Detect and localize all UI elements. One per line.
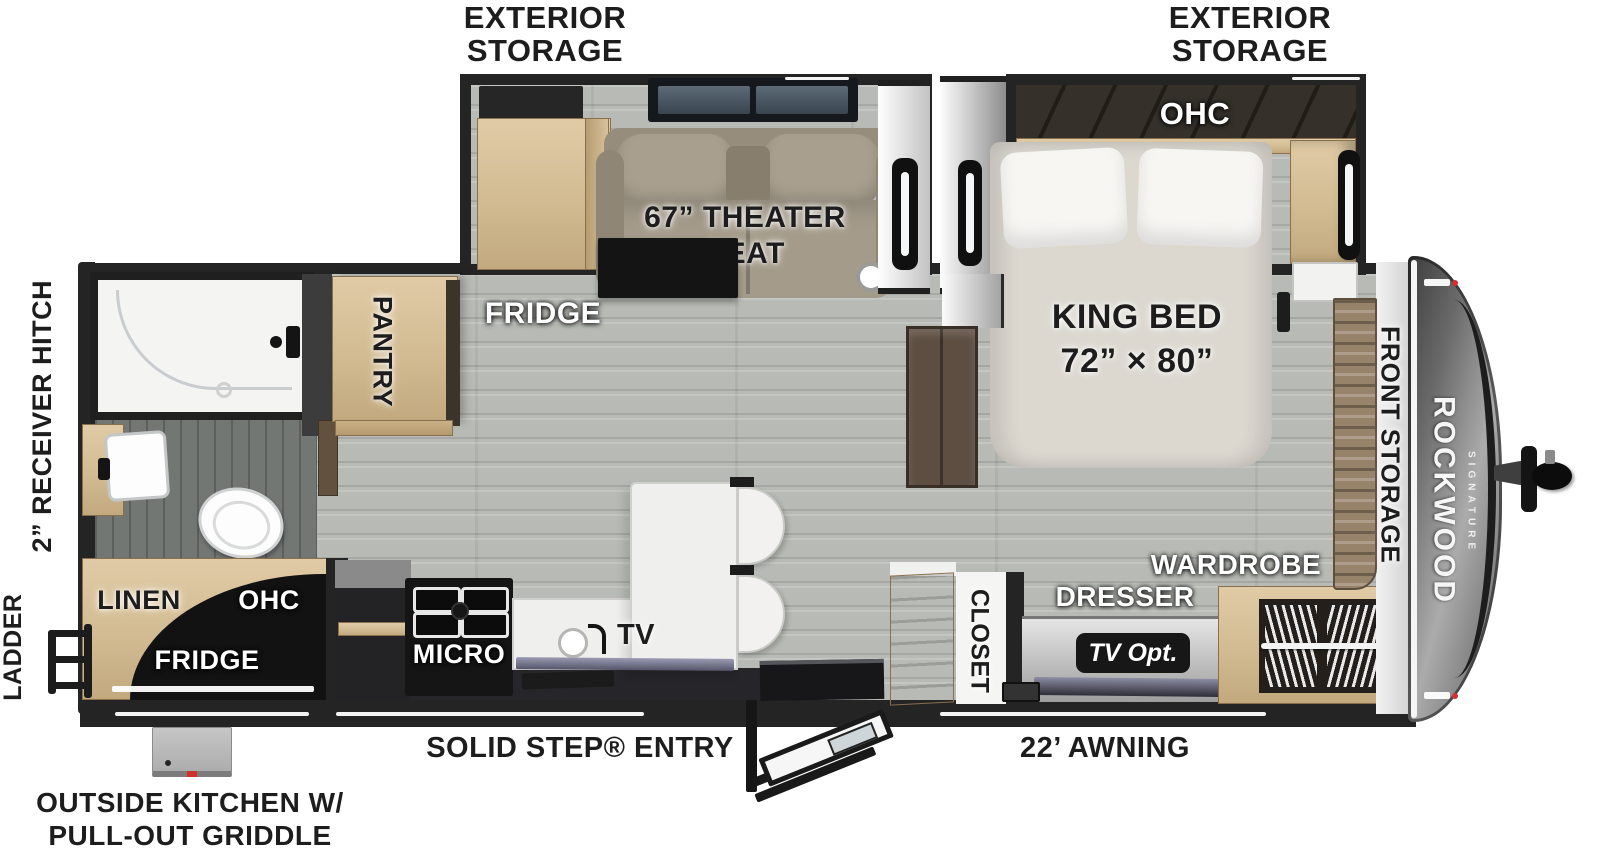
outside-kitchen-label-line2: PULL-OUT GRIDDLE (10, 819, 370, 852)
brand-sub: SIGNATURE (1465, 428, 1476, 578)
hanger-rod (1261, 643, 1385, 649)
closet-label: CLOSET (966, 580, 992, 702)
wardrobe-label: WARDROBE (1128, 550, 1344, 579)
king-bed-label-line1: KING BED (1030, 300, 1244, 336)
console-tv (1034, 677, 1224, 697)
bedroom-side-window (1338, 150, 1360, 260)
bath-wall (302, 274, 332, 436)
kitchen-base-wall (335, 560, 411, 590)
kitchen-base (335, 588, 411, 700)
pillow (1000, 147, 1129, 249)
rear-step-trim (115, 712, 309, 716)
seat-console (726, 146, 770, 208)
exterior-storage-label-right-line1: EXTERIOR (1130, 2, 1370, 35)
window-pane (756, 86, 848, 114)
awning-line (336, 712, 644, 716)
solid-step-entry-label: SOLID STEP® ENTRY (415, 733, 745, 763)
shower (90, 272, 314, 420)
foot-cabinet (1292, 262, 1358, 302)
marker-light-red (1452, 280, 1458, 286)
theater-slide-end-wall (878, 80, 930, 294)
outside-fridge-label: FRIDGE (142, 646, 272, 674)
hitch-coupler (1532, 462, 1572, 490)
tv-opt-badge: TV Opt. (1076, 633, 1190, 673)
brand-name: ROCKWOOD (1428, 378, 1460, 622)
slideout-window (648, 78, 858, 122)
window-pane (658, 86, 750, 114)
shower-head (286, 326, 300, 358)
bed-handle (1277, 292, 1290, 332)
shower-knob (270, 336, 282, 348)
exterior-storage-label-right-line2: STORAGE (1130, 35, 1370, 68)
wardrobe-cabinet (1218, 586, 1398, 704)
tv-label: TV (604, 620, 668, 650)
griddle-valve (187, 771, 197, 777)
countertop-tv (516, 657, 734, 671)
ladder-graphic (45, 624, 95, 698)
kitchen-range (405, 578, 513, 696)
outside-ohc-label: OHC (224, 586, 314, 614)
ladder-label: LADDER (0, 581, 26, 713)
front-storage-bins (1333, 298, 1377, 590)
bedroom-sliding-door (906, 326, 978, 488)
pantry-edge (446, 280, 460, 426)
pantry-label: PANTRY (368, 286, 396, 416)
kitchen-sink (558, 628, 588, 658)
closet-cabinet (890, 572, 954, 705)
cap-trim (1411, 260, 1417, 718)
dresser-label: DRESSER (1040, 582, 1210, 611)
slide-trim (1292, 77, 1360, 80)
fridge-label: FRIDGE (475, 298, 611, 330)
front-storage-label: FRONT STORAGE (1376, 300, 1403, 590)
king-bed-label-line2: 72” × 80” (1030, 344, 1244, 380)
outside-kitchen-label-line1: OUTSIDE KITCHEN W/ (10, 786, 370, 819)
exterior-storage-label-left: EXTERIOR STORAGE (425, 2, 665, 67)
slide-trim (785, 77, 849, 80)
bath-faucet (98, 458, 110, 480)
tv-opt-label: TV Opt. (1089, 639, 1178, 668)
marker-light (1424, 692, 1450, 699)
awning-label: 22’ AWNING (985, 733, 1225, 763)
shower-glass-curve (116, 290, 292, 390)
marker-light-red (1452, 693, 1458, 699)
exterior-storage-label-left-line2: STORAGE (425, 35, 665, 68)
hitch-pin (1545, 450, 1555, 464)
awning-line (940, 712, 1266, 716)
console-tablet (1002, 682, 1040, 702)
fridge (598, 238, 738, 298)
exterior-storage-label-right: EXTERIOR STORAGE (1130, 2, 1370, 67)
pillow (1136, 148, 1263, 248)
marker-light (1424, 279, 1450, 286)
end-wall-window (958, 160, 982, 266)
tv-stand (522, 670, 615, 689)
micro-label: MICRO (403, 640, 515, 668)
theater-seat-label-line1: 67” THEATER (600, 202, 890, 234)
outside-kitchen-label: OUTSIDE KITCHEN W/ PULL-OUT GRIDDLE (10, 786, 370, 852)
seat-back-cushion (762, 134, 880, 208)
bath-sink (104, 430, 171, 502)
bedroom-ohc-label: OHC (1140, 98, 1250, 131)
receiver-hitch-label: 2” RECEIVER HITCH (28, 261, 56, 571)
chair-mount (730, 565, 754, 575)
seat-back-cushion (616, 134, 734, 208)
end-wall-window (892, 158, 918, 270)
chair-mount (730, 477, 754, 487)
exterior-storage-label-left-line1: EXTERIOR (425, 2, 665, 35)
entry-landing (760, 659, 885, 701)
floorplan-canvas: EXTERIOR STORAGE EXTERIOR STORAGE 2” REC… (0, 0, 1600, 859)
shower-drain (216, 382, 232, 398)
pantry-shelf (335, 420, 453, 436)
pullout-griddle (152, 727, 232, 777)
linen-label: LINEN (84, 586, 194, 614)
bedroom-divider-wall (942, 274, 1004, 328)
outside-kitchen-step (112, 686, 314, 692)
